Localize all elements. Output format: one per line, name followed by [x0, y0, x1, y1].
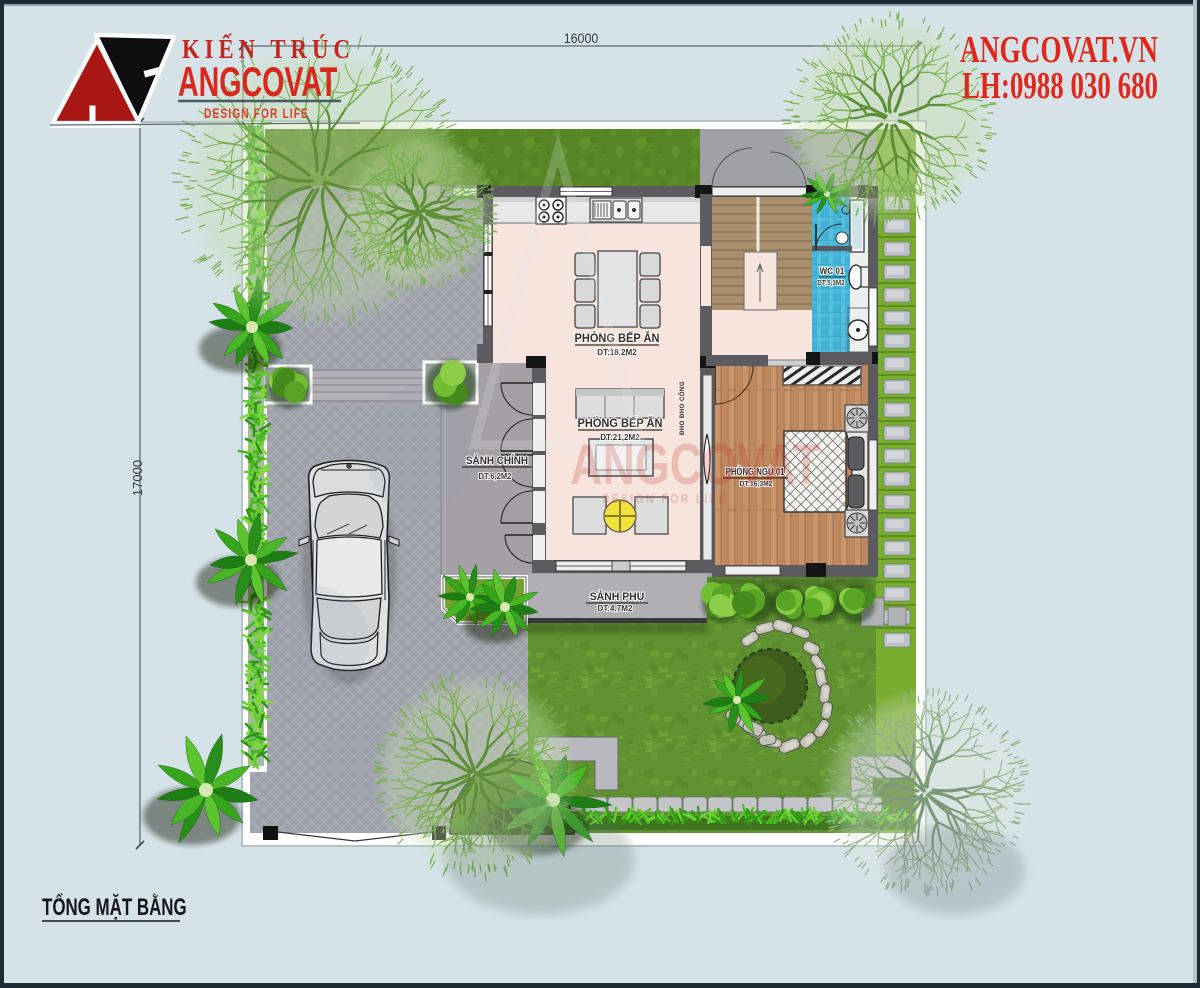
svg-text:PHÒNG BẾP ĂN: PHÒNG BẾP ĂN [578, 417, 663, 431]
svg-text:ĐHO ĐHO CÔNG: ĐHO ĐHO CÔNG [678, 381, 686, 435]
svg-text:17000: 17000 [130, 460, 145, 496]
svg-text:LH:0988 030 680: LH:0988 030 680 [962, 66, 1158, 107]
svg-text:DT:4,7M2: DT:4,7M2 [598, 603, 633, 613]
svg-text:ANGCOVAT: ANGCOVAT [178, 57, 337, 105]
svg-text:ANGCOVAT: ANGCOVAT [570, 433, 820, 496]
svg-text:SẢNH PHỤ: SẢNH PHỤ [590, 590, 645, 603]
svg-text:DESIGN FOR LIFE: DESIGN FOR LIFE [204, 105, 309, 121]
svg-text:DESIGN FOR LIFE: DESIGN FOR LIFE [602, 492, 728, 506]
svg-text:WC 01: WC 01 [820, 266, 845, 277]
svg-text:DT:5,3M2: DT:5,3M2 [817, 280, 845, 287]
svg-text:DT:6,2M2: DT:6,2M2 [479, 472, 513, 481]
svg-text:SẢNH CHÍNH: SẢNH CHÍNH [466, 453, 528, 467]
svg-text:16000: 16000 [564, 31, 599, 47]
svg-text:TỔNG MẶT BẰNG: TỔNG MẶT BẰNG [42, 893, 187, 921]
